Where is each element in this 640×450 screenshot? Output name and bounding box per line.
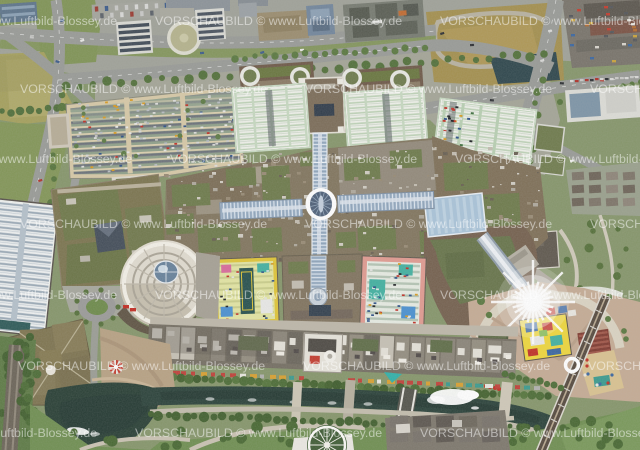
svg-text:VORSCHAUBILD © www.Luftbild-Bl: VORSCHAUBILD © www.Luftbild-Blossey.de xyxy=(170,152,417,166)
svg-text:VORSCHAUBILD © www.Luftbild-Bl: VORSCHAUBILD © www.Luftbild-Blossey.de xyxy=(305,82,552,96)
svg-text:VORSCHAUBILD © www.Luftbild-Bl: VORSCHAUBILD © www.Luftbild-Blossey.de xyxy=(155,288,402,302)
svg-text:VORSCHAUBILD © www.Luftbild-Bl: VORSCHAUBILD © www.Luftbild-Blossey.de xyxy=(135,426,382,440)
svg-text:VORSCHAUBILD © www.Luftbild-Bl: VORSCHAUBILD © www.Luftbild-Blossey.de xyxy=(0,426,97,440)
svg-text:VORSCHAUBILD © www.Luftbild-Bl: VORSCHAUBILD © www.Luftbild-Blossey.de xyxy=(0,14,117,28)
svg-text:VORSCHAUBILD © www.Luftbild-Bl: VORSCHAUBILD © www.Luftbild-Blossey.de xyxy=(440,288,640,302)
svg-text:VORSCHAUBILD © www.Luftbild-Bl: VORSCHAUBILD © www.Luftbild-Blossey.de xyxy=(455,152,640,166)
svg-text:VORSCHAUBILD © www.Luftbild-Bl: VORSCHAUBILD © www.Luftbild-Blossey.de xyxy=(303,359,550,373)
svg-text:VORSCHAUBILD © www.Luftbild-Bl: VORSCHAUBILD © www.Luftbild-Blossey.de xyxy=(440,14,640,28)
svg-text:VORSCHAUBILD © www.Luftbild-Bl: VORSCHAUBILD © www.Luftbild-Blossey.de xyxy=(420,426,640,440)
svg-text:VORSCHAUBILD © www.Luftbild-Bl: VORSCHAUBILD © www.Luftbild-Blossey.de xyxy=(0,152,132,166)
svg-text:VORSCHAUBILD © www.Luftbild-Bl: VORSCHAUBILD © www.Luftbild-Blossey.de xyxy=(0,288,117,302)
svg-text:VORSCHAUBILD © www.Luftbild-Bl: VORSCHAUBILD © www.Luftbild-Blossey.de xyxy=(590,82,640,96)
svg-text:VORSCHAUBILD © www.Luftbild-Bl: VORSCHAUBILD © www.Luftbild-Blossey.de xyxy=(20,82,267,96)
svg-text:VORSCHAUBILD © www.Luftbild-Bl: VORSCHAUBILD © www.Luftbild-Blossey.de xyxy=(20,217,267,231)
svg-text:VORSCHAUBILD © www.Luftbild-Bl: VORSCHAUBILD © www.Luftbild-Blossey.de xyxy=(305,217,552,231)
svg-text:VORSCHAUBILD © www.Luftbild-Bl: VORSCHAUBILD © www.Luftbild-Blossey.de xyxy=(155,14,402,28)
svg-text:VORSCHAUBILD © www.Luftbild-Bl: VORSCHAUBILD © www.Luftbild-Blossey.de xyxy=(18,359,265,373)
svg-text:VORSCHAUBILD © www.Luftbild-Bl: VORSCHAUBILD © www.Luftbild-Blossey.de xyxy=(590,217,640,231)
svg-text:VORSCHAUBILD © www.Luftbild-Bl: VORSCHAUBILD © www.Luftbild-Blossey.de xyxy=(588,359,640,373)
